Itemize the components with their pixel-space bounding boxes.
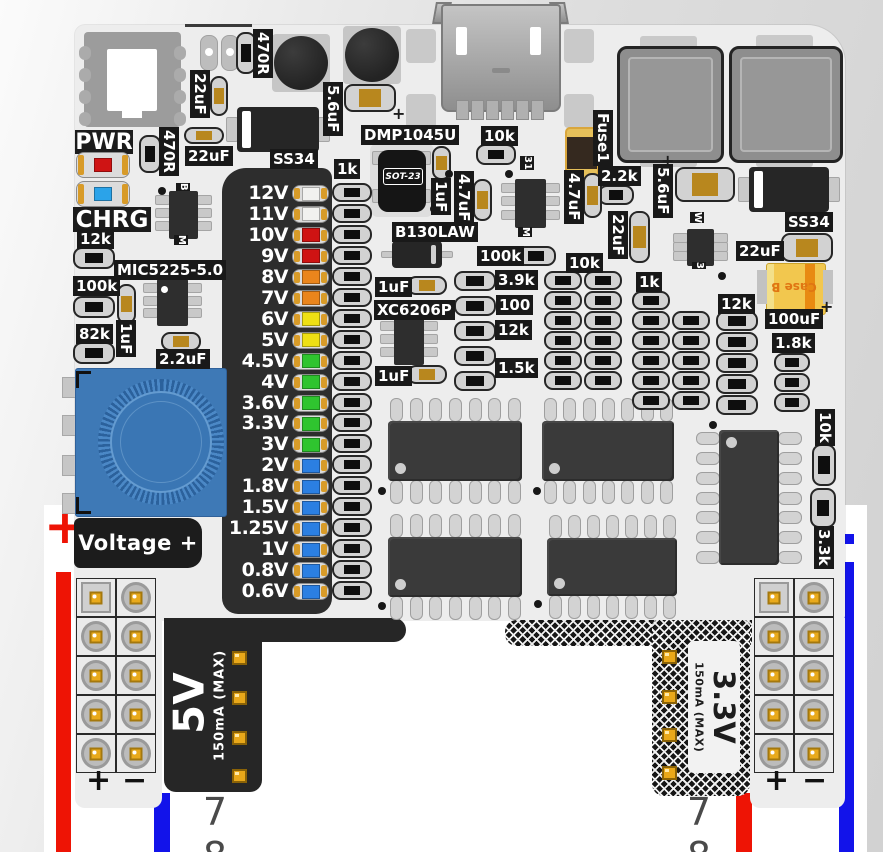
ic-pin xyxy=(410,596,423,620)
smd-resistor xyxy=(332,560,372,579)
smd-resistor xyxy=(810,488,836,528)
smd-resistor xyxy=(544,371,582,390)
ic-pin xyxy=(410,514,423,538)
silk-label-100k: 100k xyxy=(477,246,524,266)
usb-slot xyxy=(456,27,467,55)
ic-pin xyxy=(696,472,720,485)
pin1-dot xyxy=(395,463,406,474)
smd-resistor xyxy=(332,476,372,495)
sot-pad xyxy=(380,321,395,331)
ic-pin xyxy=(641,480,654,504)
smd-capacitor xyxy=(407,365,447,384)
silk-label-mic5225-5.0: MIC5225-5.0 xyxy=(114,260,226,280)
silk-label-22uf: 22uF xyxy=(736,241,784,261)
silk-label-4.7uf: 4.7uF xyxy=(564,170,584,224)
smd-resistor xyxy=(544,351,582,370)
usb-slot xyxy=(530,27,541,55)
smd-resistor xyxy=(672,391,710,410)
ic-pin xyxy=(390,480,403,504)
connector-bump xyxy=(174,68,186,82)
ic-pin xyxy=(449,514,462,538)
pcb-illustration: + 7 8 7 8 5V 150mA (MAX) 3.3V xyxy=(0,0,883,852)
sot-pad xyxy=(545,210,560,220)
ic-pin xyxy=(390,596,403,620)
smd-resistor-core xyxy=(488,150,505,160)
smd-resistor xyxy=(332,204,372,223)
smd-capacitor-core xyxy=(419,369,436,380)
smd-resistor xyxy=(476,144,516,165)
smd-resistor-core xyxy=(555,296,571,305)
connector-bump xyxy=(174,46,186,60)
sot-pad xyxy=(423,347,438,357)
smd-resistor-core xyxy=(344,523,361,532)
ic-pin xyxy=(544,398,557,422)
smd-resistor xyxy=(544,291,582,310)
smd-resistor xyxy=(632,311,670,330)
ic-pin xyxy=(508,596,521,620)
smd-resistor xyxy=(332,351,372,370)
ic-pin xyxy=(587,515,600,539)
ic-pin xyxy=(663,595,676,619)
smd-capacitor-core xyxy=(587,186,598,205)
sot-pad xyxy=(187,283,202,293)
silk-label-470r: 470R xyxy=(253,29,273,78)
smd-resistor-core xyxy=(555,376,571,385)
smd-capacitor-core xyxy=(121,296,132,313)
smd-resistor xyxy=(716,311,758,331)
sot-pad xyxy=(545,196,560,206)
silk-label-w: W xyxy=(690,212,704,223)
ic-pin xyxy=(778,551,802,564)
smd-resistor xyxy=(716,353,758,373)
smd-resistor-core xyxy=(344,544,361,553)
sot-body xyxy=(394,317,424,365)
polarity-plus: + xyxy=(392,104,405,123)
usb-pin xyxy=(531,100,544,120)
sot-pad xyxy=(501,210,516,220)
silk-label-12k: 12k xyxy=(77,229,114,249)
smd-resistor xyxy=(332,288,372,307)
smd-capacitor xyxy=(184,127,224,144)
smd-resistor xyxy=(332,539,372,558)
silk-label-10k: 10k xyxy=(481,126,518,146)
ic-pin xyxy=(778,531,802,544)
smd-capacitor-core xyxy=(692,173,718,195)
smd-capacitor-core xyxy=(214,88,224,105)
smd-resistor-core xyxy=(595,296,611,305)
smd-capacitor xyxy=(407,276,447,295)
electrolytic-cap xyxy=(345,28,399,82)
smd-resistor-core xyxy=(145,146,155,162)
soic-body xyxy=(542,421,674,481)
ic-pin xyxy=(469,596,482,620)
smd-resistor-core xyxy=(344,209,361,218)
ic-pin xyxy=(508,480,521,504)
tantalum-cap: Case B xyxy=(766,263,826,315)
smd-resistor xyxy=(332,330,372,349)
smd-resistor-core xyxy=(344,460,361,469)
smd-resistor-core xyxy=(683,396,699,405)
smd-capacitor-core xyxy=(796,239,818,257)
smd-resistor xyxy=(716,332,758,352)
silk-label-1k: 1k xyxy=(636,272,662,292)
pin1-dot xyxy=(549,463,560,474)
silk-label-10k: 10k xyxy=(566,253,603,273)
smd-resistor-core xyxy=(344,356,361,365)
usb-pin xyxy=(471,100,484,120)
ic-pin xyxy=(644,515,657,539)
ic-pin xyxy=(778,432,802,445)
silk-label-100uf: 100uF xyxy=(765,309,823,329)
ic-pin xyxy=(488,514,501,538)
smd-resistor-core xyxy=(818,456,830,473)
silk-label-2.2uf: 2.2uF xyxy=(156,349,210,369)
smd-resistor xyxy=(332,497,372,516)
smd-resistor-core xyxy=(555,276,571,285)
ic-pin xyxy=(644,595,657,619)
smd-resistor-core xyxy=(785,358,800,367)
soic-body xyxy=(388,421,522,481)
diode-pad xyxy=(441,251,453,258)
pot-bracket xyxy=(76,497,91,514)
sot-pad xyxy=(380,347,395,357)
ic-pin xyxy=(568,515,581,539)
silk-label-1uf: 1uF xyxy=(375,366,412,386)
sot-pad xyxy=(423,321,438,331)
smd-resistor-core xyxy=(683,316,699,325)
smd-resistor xyxy=(73,296,115,318)
silk-label-12k: 12k xyxy=(495,320,532,340)
usb-connector xyxy=(441,4,561,112)
smd-capacitor-core xyxy=(436,156,447,170)
ic-pin xyxy=(429,514,442,538)
smd-resistor xyxy=(332,434,372,453)
smd-resistor-core xyxy=(85,253,102,263)
smd-resistor-core xyxy=(344,272,361,281)
smd-resistor xyxy=(73,247,115,269)
ic-pin xyxy=(563,398,576,422)
smd-resistor-core xyxy=(85,302,102,312)
ic-pin xyxy=(660,480,673,504)
smd-resistor-core xyxy=(528,251,545,260)
smd-resistor-core xyxy=(595,376,611,385)
smd-capacitor xyxy=(344,84,396,112)
cathode-stripe xyxy=(754,171,763,208)
smd-capacitor-core xyxy=(173,336,190,347)
smd-resistor-core xyxy=(683,376,699,385)
silk-label-1k: 1k xyxy=(334,159,360,179)
usb-mount-pad xyxy=(564,29,594,63)
ic-pin xyxy=(549,595,562,619)
supercap-top xyxy=(740,57,832,152)
connector-bump xyxy=(79,68,91,82)
silk-label-dmp1045u: DMP1045U xyxy=(361,125,459,145)
smd-capacitor-core xyxy=(359,89,381,106)
silk-label-3.9k: 3.9k xyxy=(495,270,538,290)
smd-resistor xyxy=(454,296,496,316)
smd-resistor xyxy=(584,371,622,390)
smd-resistor-core xyxy=(728,400,745,409)
smd-resistor-core xyxy=(595,356,611,365)
sot-pad xyxy=(380,334,395,344)
usb-mount-pad xyxy=(564,94,594,128)
silk-label-470r: 470R xyxy=(159,127,179,176)
smd-resistor-core xyxy=(817,500,830,517)
smd-resistor-core xyxy=(466,301,483,310)
via-dot xyxy=(709,421,717,429)
components-layer: Case BSOT-23+++470R22uF5.6uF470R22uFSS34… xyxy=(0,0,883,852)
silk-label-82k: 82k xyxy=(76,324,113,344)
smd-resistor xyxy=(454,371,496,391)
sot-body xyxy=(515,179,546,228)
smd-resistor-core xyxy=(643,316,659,325)
sot-pad xyxy=(713,251,728,261)
sot-body xyxy=(169,191,198,239)
silk-label-10k: 10k xyxy=(815,409,835,446)
smd-resistor-core xyxy=(344,335,361,344)
smd-resistor-core xyxy=(344,314,361,323)
pot-knob[interactable] xyxy=(98,379,224,505)
pin1-dot xyxy=(395,579,406,590)
smd-resistor xyxy=(332,372,372,391)
sot-pad xyxy=(143,308,158,318)
ic-pin xyxy=(488,480,501,504)
smd-resistor-core xyxy=(595,336,611,345)
smd-capacitor-core xyxy=(477,191,488,208)
sot-pad xyxy=(501,196,516,206)
smd-resistor-core xyxy=(85,348,102,358)
silk-label-5.6uf: 5.6uF xyxy=(323,82,343,136)
smd-resistor-core xyxy=(555,356,571,365)
smd-resistor xyxy=(332,309,372,328)
smd-resistor-core xyxy=(595,316,611,325)
cathode-stripe xyxy=(242,111,251,148)
smd-resistor xyxy=(454,271,496,291)
pot-bracket xyxy=(76,371,91,388)
usb-detail xyxy=(492,68,510,73)
smd-resistor xyxy=(584,291,622,310)
soic-body xyxy=(719,430,779,565)
sot-pad xyxy=(197,208,212,218)
smd-resistor-core xyxy=(555,316,571,325)
smd-resistor xyxy=(332,225,372,244)
smd-resistor xyxy=(716,374,758,394)
ic-pin xyxy=(469,514,482,538)
ic-pin xyxy=(625,515,638,539)
smd-resistor-core xyxy=(344,565,361,574)
usb-pin xyxy=(501,100,514,120)
tantalum-pad xyxy=(757,270,767,304)
smd-resistor-core xyxy=(785,398,800,407)
pad-hole xyxy=(205,48,213,56)
ic-pin xyxy=(778,511,802,524)
ic-pin xyxy=(696,452,720,465)
smd-resistor xyxy=(73,342,115,364)
potentiometer[interactable] xyxy=(75,368,227,517)
ic-pin xyxy=(469,398,482,422)
ic-pin xyxy=(488,596,501,620)
ic-pin xyxy=(696,551,720,564)
smd-capacitor xyxy=(210,76,228,116)
smd-resistor xyxy=(332,183,372,202)
silk-label-xc6206p: XC6206P xyxy=(374,300,455,320)
supercap xyxy=(729,46,843,163)
silk-label-5.6uf: 5.6uF xyxy=(653,164,673,218)
ic-pin xyxy=(508,398,521,422)
supercap xyxy=(617,46,724,163)
smd-resistor-core xyxy=(683,336,699,345)
oval-pad xyxy=(200,35,218,71)
pin1-dot xyxy=(726,437,737,448)
smd-resistor-core xyxy=(728,316,745,325)
smd-resistor xyxy=(454,321,496,341)
smd-resistor xyxy=(332,581,372,600)
ic-pin xyxy=(606,515,619,539)
sot-pad xyxy=(143,283,158,293)
ic-pin xyxy=(549,515,562,539)
silk-label-m: M xyxy=(174,235,188,245)
connector-cavity-tab xyxy=(122,109,142,118)
smd-resistor xyxy=(584,271,622,290)
usb-mount-pad xyxy=(406,94,436,128)
smd-resistor-core xyxy=(344,230,361,239)
via-dot xyxy=(718,272,726,280)
smd-resistor-core xyxy=(728,379,745,388)
silk-label-100: 100 xyxy=(496,295,533,315)
silk-label-3: 3 xyxy=(692,262,706,269)
sot-pad xyxy=(501,183,516,193)
smd-resistor-core xyxy=(643,336,659,345)
ic-pin xyxy=(696,432,720,445)
silk-label-2.2k: 2.2k xyxy=(598,166,641,186)
smd-capacitor xyxy=(781,233,833,262)
supercap-top xyxy=(628,57,713,152)
cathode-stripe xyxy=(431,245,436,264)
smd-resistor-core xyxy=(595,276,611,285)
ic-pin xyxy=(602,480,615,504)
ic-pin xyxy=(696,492,720,505)
smd-resistor-core xyxy=(728,358,745,367)
smd-resistor xyxy=(812,444,836,486)
smd-resistor-core xyxy=(344,418,361,427)
via-dot xyxy=(378,602,386,610)
smd-resistor-core xyxy=(643,356,659,365)
smd-resistor-core xyxy=(344,502,361,511)
sot-pad xyxy=(155,195,170,205)
smd-capacitor xyxy=(675,167,735,202)
ic-pin xyxy=(544,480,557,504)
connector-bump xyxy=(79,46,91,60)
smd-capacitor-core xyxy=(633,226,645,248)
ic-pin xyxy=(410,480,423,504)
smd-resistor xyxy=(544,271,582,290)
ic-pin xyxy=(449,480,462,504)
smd-capacitor xyxy=(629,211,650,263)
smd-resistor xyxy=(716,395,758,415)
smd-resistor-core xyxy=(466,351,483,360)
silk-label-ss34: SS34 xyxy=(785,212,833,232)
diode-pad xyxy=(828,177,840,202)
smd-resistor-core xyxy=(643,396,659,405)
smd-resistor-core xyxy=(609,190,624,199)
pin1-dot xyxy=(554,578,565,589)
sot-pad xyxy=(155,221,170,231)
ic-pin xyxy=(778,492,802,505)
smd-resistor-core xyxy=(344,439,361,448)
smd-resistor-core xyxy=(466,326,483,335)
smd-resistor xyxy=(584,351,622,370)
sot-pad xyxy=(545,183,560,193)
smd-resistor-core xyxy=(466,276,483,285)
ic-pin xyxy=(488,398,501,422)
ic-pin xyxy=(583,480,596,504)
ic-pin xyxy=(778,472,802,485)
usb-mount-pad xyxy=(406,29,436,63)
sot-pad xyxy=(197,221,212,231)
ic-pin xyxy=(568,595,581,619)
ic-pin xyxy=(390,514,403,538)
ic-pin xyxy=(429,398,442,422)
silk-label-22uf: 22uF xyxy=(608,211,628,259)
smd-capacitor-core xyxy=(196,131,213,140)
sot-pad xyxy=(187,308,202,318)
sot-pad xyxy=(673,251,688,261)
smd-resistor-core xyxy=(683,356,699,365)
diode-body xyxy=(237,107,319,152)
via-dot xyxy=(445,170,453,178)
silk-label-3.3k: 3.3k xyxy=(814,526,834,569)
mic5225-dot xyxy=(161,286,168,293)
smd-resistor-core xyxy=(344,188,361,197)
ic-pin xyxy=(583,398,596,422)
diode-body xyxy=(392,241,442,268)
smd-resistor xyxy=(632,331,670,350)
connector-bump xyxy=(174,112,186,126)
smd-resistor-core xyxy=(344,586,361,595)
sot-pad xyxy=(143,296,158,306)
ic-pin xyxy=(563,480,576,504)
smd-resistor xyxy=(332,393,372,412)
usb-pin xyxy=(516,100,529,120)
via-dot xyxy=(505,170,513,178)
ic-pin xyxy=(778,452,802,465)
smd-resistor xyxy=(774,353,810,372)
diode-body xyxy=(749,167,829,212)
smd-resistor xyxy=(332,518,372,537)
ic-pin xyxy=(587,595,600,619)
ic-pin xyxy=(429,596,442,620)
ic-pin xyxy=(602,398,615,422)
smd-resistor-core xyxy=(785,378,800,387)
pad-hole xyxy=(226,48,234,56)
connector-bump xyxy=(79,90,91,104)
via-dot xyxy=(158,187,166,195)
smd-resistor-core xyxy=(466,376,483,385)
connector-cavity xyxy=(107,49,157,111)
ic-pin xyxy=(696,531,720,544)
smd-resistor-core xyxy=(555,336,571,345)
via-dot xyxy=(533,487,541,495)
smd-resistor xyxy=(139,135,161,173)
silk-label-1uf: 1uF xyxy=(116,320,136,357)
ic-pin xyxy=(469,480,482,504)
smd-resistor xyxy=(332,246,372,265)
silk-label-fuse1: Fuse1 xyxy=(593,110,613,166)
silk-label-22uf: 22uF xyxy=(185,146,233,166)
connector-bump xyxy=(174,90,186,104)
connector-bump xyxy=(79,112,91,126)
smd-resistor-core xyxy=(643,296,659,305)
